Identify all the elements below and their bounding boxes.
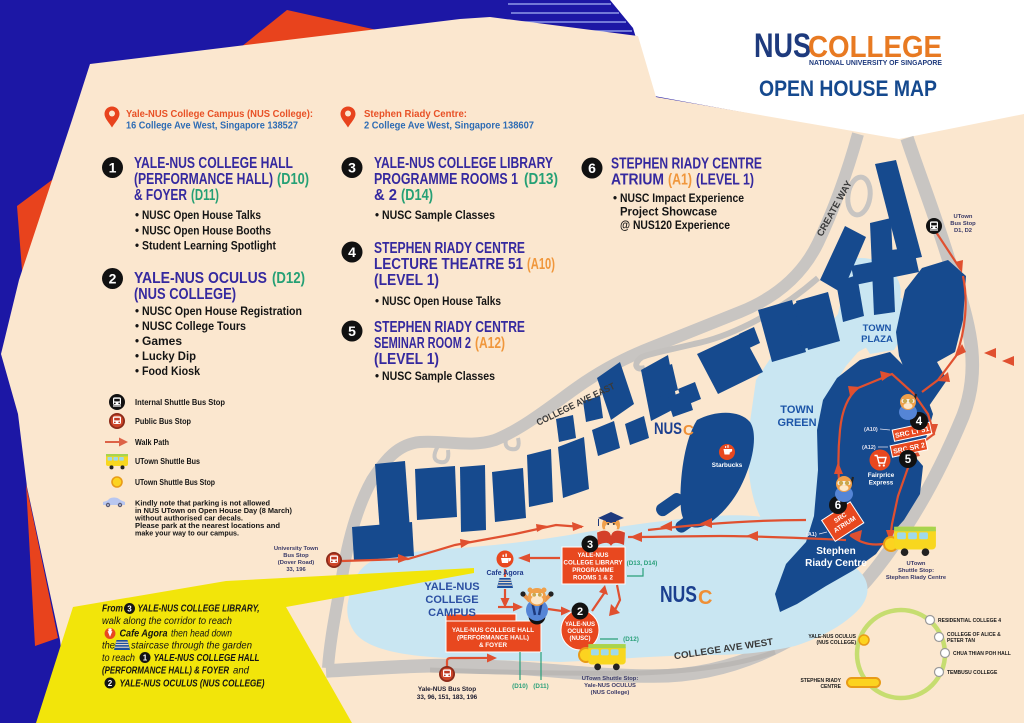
svg-text:Express: Express	[869, 480, 894, 487]
svg-text:6: 6	[588, 160, 596, 176]
svg-text:Starbucks: Starbucks	[712, 462, 743, 469]
svg-text:•: •	[375, 296, 379, 308]
svg-text:•: •	[135, 336, 139, 348]
svg-text:YALE-NUS: YALE-NUS	[424, 581, 479, 593]
svg-text:YALE-NUS OCULUS (NUS COLLEGE): YALE-NUS OCULUS (NUS COLLEGE)	[120, 679, 266, 690]
svg-text:Stephen: Stephen	[816, 546, 855, 557]
svg-text:(D10): (D10)	[512, 683, 528, 690]
svg-text:Walk Path: Walk Path	[135, 438, 169, 447]
svg-text:Stephen Riady Centre: Stephen Riady Centre	[886, 575, 947, 581]
svg-text:RESIDENTIAL COLLEGE 4: RESIDENTIAL COLLEGE 4	[938, 618, 1001, 624]
svg-text:(Dover Road): (Dover Road)	[278, 560, 314, 566]
svg-text:PLAZA: PLAZA	[861, 334, 893, 345]
svg-text:CHUA THIAN POH HALL: CHUA THIAN POH HALL	[953, 651, 1011, 657]
svg-text:& 2: & 2	[374, 187, 397, 204]
svg-text:•: •	[613, 193, 617, 205]
svg-text:OCULUS: OCULUS	[567, 629, 592, 635]
svg-text:YALE-NUS COLLEGE HALL: YALE-NUS COLLEGE HALL	[154, 653, 260, 664]
svg-text:YALE-NUS OCULUS: YALE-NUS OCULUS	[134, 270, 267, 287]
svg-text:NUSC Impact Experience: NUSC Impact Experience	[620, 193, 744, 205]
svg-text:NUS: NUS	[654, 419, 682, 438]
svg-text:YALE-NUS: YALE-NUS	[565, 622, 595, 628]
svg-text:(LEVEL 1): (LEVEL 1)	[374, 351, 439, 368]
svg-text:3: 3	[587, 539, 593, 551]
svg-text:then head down: then head down	[171, 629, 232, 640]
svg-text:PROGRAMME: PROGRAMME	[572, 567, 614, 574]
svg-text:University Town: University Town	[274, 546, 319, 552]
svg-text:2: 2	[109, 271, 117, 287]
svg-text:Public Bus Stop: Public Bus Stop	[135, 417, 191, 426]
svg-text:•: •	[135, 210, 139, 222]
svg-text:TEMBUSU COLLEGE: TEMBUSU COLLEGE	[947, 670, 998, 676]
svg-text:Yale-NUS College Campus (NUS C: Yale-NUS College Campus (NUS College):	[126, 109, 313, 120]
svg-text:33, 196: 33, 196	[286, 567, 306, 573]
svg-text:(D13): (D13)	[524, 171, 558, 188]
svg-text:TOWN: TOWN	[863, 323, 892, 334]
svg-text:STEPHEN RIADY CENTRE: STEPHEN RIADY CENTRE	[611, 156, 762, 173]
svg-text:NUS: NUS	[660, 581, 697, 607]
svg-text:3: 3	[127, 605, 132, 614]
svg-text:(D11): (D11)	[191, 187, 219, 204]
svg-text:& FOYER: & FOYER	[134, 187, 187, 204]
svg-text:UTown: UTown	[954, 214, 973, 220]
svg-text:•: •	[135, 321, 139, 333]
svg-text:NUSC Open House Talks: NUSC Open House Talks	[382, 296, 501, 308]
svg-text:•: •	[375, 210, 379, 222]
svg-text:5: 5	[905, 454, 912, 466]
svg-text:Bus Stop: Bus Stop	[283, 553, 309, 559]
svg-text:•: •	[135, 351, 139, 363]
svg-text:to reach: to reach	[102, 653, 135, 664]
svg-text:6: 6	[835, 500, 841, 512]
svg-text:the: the	[102, 641, 115, 652]
svg-text:ROOMS 1 & 2: ROOMS 1 & 2	[573, 575, 613, 582]
svg-text:(PERFORMANCE HALL): (PERFORMANCE HALL)	[457, 635, 529, 642]
svg-text:YALE-NUS COLLEGE LIBRARY: YALE-NUS COLLEGE LIBRARY	[374, 155, 554, 172]
svg-text:NUSC Open House Booths: NUSC Open House Booths	[142, 226, 271, 238]
svg-text:YALE-NUS COLLEGE LIBRARY,: YALE-NUS COLLEGE LIBRARY,	[138, 604, 260, 615]
svg-text:(NUS COLLEGE): (NUS COLLEGE)	[817, 640, 857, 646]
svg-text:OPEN HOUSE MAP: OPEN HOUSE MAP	[759, 76, 937, 101]
svg-text:(D11): (D11)	[533, 683, 548, 690]
svg-text:•: •	[135, 366, 139, 378]
svg-text:16 College Ave West, Singapore: 16 College Ave West, Singapore 138527	[126, 121, 298, 132]
svg-text:NUS: NUS	[754, 27, 811, 65]
svg-text:NUSC Open House Talks: NUSC Open House Talks	[142, 210, 261, 222]
svg-text:From: From	[102, 604, 123, 615]
svg-text:2: 2	[108, 679, 113, 688]
svg-text:YALE-NUS COLLEGE HALL: YALE-NUS COLLEGE HALL	[134, 155, 293, 172]
svg-text:Student Learning Spotlight: Student Learning Spotlight	[142, 241, 276, 253]
svg-text:•: •	[135, 306, 139, 318]
svg-text:(A12): (A12)	[475, 335, 505, 352]
svg-text:GREEN: GREEN	[777, 417, 816, 429]
svg-text:Lucky Dip: Lucky Dip	[142, 351, 196, 363]
svg-text:Games: Games	[142, 336, 182, 348]
svg-text:Stephen Riady Centre:: Stephen Riady Centre:	[364, 109, 467, 120]
svg-text:(A1): (A1)	[668, 172, 692, 189]
svg-text:(D14): (D14)	[401, 187, 433, 204]
svg-text:COLLEGE: COLLEGE	[425, 594, 478, 606]
svg-text:2: 2	[577, 606, 583, 618]
svg-text:and: and	[233, 666, 249, 677]
svg-text:YALE-NUS: YALE-NUS	[577, 552, 608, 559]
svg-text:UTown Shuttle Bus: UTown Shuttle Bus	[135, 457, 200, 466]
svg-text:Project Showcase: Project Showcase	[620, 207, 717, 219]
svg-text:TOWN: TOWN	[780, 404, 813, 416]
svg-text:NUSC Sample Classes: NUSC Sample Classes	[382, 210, 495, 222]
svg-text:(D10): (D10)	[277, 171, 309, 188]
svg-text:UTown Shuttle Bus Stop: UTown Shuttle Bus Stop	[135, 478, 215, 487]
svg-text:4: 4	[916, 416, 923, 428]
svg-text:(LEVEL 1): (LEVEL 1)	[374, 272, 439, 289]
svg-text:1: 1	[143, 654, 148, 663]
svg-text:(A12): (A12)	[862, 445, 876, 451]
svg-text:3: 3	[348, 160, 356, 176]
svg-text:NUSC Sample Classes: NUSC Sample Classes	[382, 371, 495, 383]
svg-text:Shuttle Stop:: Shuttle Stop:	[898, 568, 934, 574]
svg-text:(NUS COLLEGE): (NUS COLLEGE)	[134, 286, 236, 303]
svg-text:2 College Ave West, Singapore: 2 College Ave West, Singapore 138607	[364, 121, 534, 132]
svg-text:C: C	[698, 587, 712, 609]
svg-text:& FOYER: & FOYER	[479, 642, 507, 649]
svg-text:Bus Stop: Bus Stop	[950, 221, 976, 227]
svg-text:Food Kiosk: Food Kiosk	[142, 366, 201, 378]
svg-text:C: C	[683, 422, 694, 439]
svg-text:4: 4	[348, 244, 356, 260]
svg-text:NATIONAL UNIVERSITY OF SINGAPO: NATIONAL UNIVERSITY OF SINGAPORE	[809, 58, 942, 67]
svg-text:(A1): (A1)	[806, 532, 817, 538]
svg-text:make your way to our campus.: make your way to our campus.	[135, 529, 239, 538]
svg-text:(A10): (A10)	[527, 256, 555, 273]
svg-text:staircase through the garden: staircase through the garden	[131, 641, 252, 652]
svg-text:(PERFORMANCE HALL): (PERFORMANCE HALL)	[134, 171, 273, 188]
svg-text:SEMINAR ROOM 2: SEMINAR ROOM 2	[374, 335, 471, 352]
svg-text:1: 1	[109, 160, 117, 176]
svg-text:STEPHEN RIADY CENTRE: STEPHEN RIADY CENTRE	[374, 240, 525, 257]
svg-text:STEPHEN RIADY CENTRE: STEPHEN RIADY CENTRE	[374, 319, 525, 336]
svg-text:•: •	[135, 241, 139, 253]
svg-text:(A10): (A10)	[864, 427, 878, 433]
svg-text:(D12): (D12)	[623, 636, 639, 643]
svg-text:•: •	[375, 371, 379, 383]
svg-text:CAMPUS: CAMPUS	[428, 607, 476, 619]
svg-text:(NUSC): (NUSC)	[570, 636, 591, 642]
svg-text:Riady Centre: Riady Centre	[805, 558, 867, 569]
svg-text:(D13, D14): (D13, D14)	[627, 560, 658, 567]
svg-text:YALE-NUS COLLEGE HALL: YALE-NUS COLLEGE HALL	[452, 627, 534, 634]
svg-text:(D12): (D12)	[272, 270, 305, 287]
svg-text:NUSC Open House Registration: NUSC Open House Registration	[142, 306, 302, 318]
svg-text:@ NUS120 Experience: @ NUS120 Experience	[620, 220, 730, 232]
svg-text:Cafe Agora: Cafe Agora	[120, 629, 168, 640]
svg-text:•: •	[135, 226, 139, 238]
svg-text:Yale-NUS OCULUS: Yale-NUS OCULUS	[584, 683, 636, 689]
svg-text:Cafe Agora: Cafe Agora	[486, 570, 523, 577]
svg-text:NUSC College Tours: NUSC College Tours	[142, 321, 246, 333]
svg-text:LECTURE THEATRE 51: LECTURE THEATRE 51	[374, 256, 523, 273]
svg-text:Fairprice: Fairprice	[868, 472, 895, 479]
svg-text:D1, D2: D1, D2	[954, 228, 972, 234]
svg-text:COLLEGE LIBRARY: COLLEGE LIBRARY	[564, 560, 624, 567]
svg-text:UTown Shuttle Stop:: UTown Shuttle Stop:	[582, 676, 639, 682]
svg-text:(NUS College): (NUS College)	[591, 690, 630, 696]
svg-text:CENTRE: CENTRE	[820, 684, 841, 690]
svg-text:PETER TAN: PETER TAN	[947, 638, 975, 644]
svg-text:ATRIUM: ATRIUM	[611, 172, 664, 189]
svg-text:(PERFORMANCE HALL) & FOYER: (PERFORMANCE HALL) & FOYER	[102, 666, 230, 677]
svg-text:33, 96, 151, 183, 196: 33, 96, 151, 183, 196	[417, 694, 478, 701]
svg-text:PROGRAMME ROOMS 1: PROGRAMME ROOMS 1	[374, 171, 518, 188]
svg-text:Internal Shuttle Bus Stop: Internal Shuttle Bus Stop	[135, 398, 225, 407]
svg-text:walk along the corridor to rea: walk along the corridor to reach	[102, 616, 232, 627]
svg-text:(LEVEL 1): (LEVEL 1)	[696, 172, 754, 189]
svg-text:5: 5	[348, 323, 356, 339]
svg-text:Yale-NUS Bus Stop: Yale-NUS Bus Stop	[418, 686, 476, 693]
svg-text:UTown: UTown	[907, 561, 926, 567]
